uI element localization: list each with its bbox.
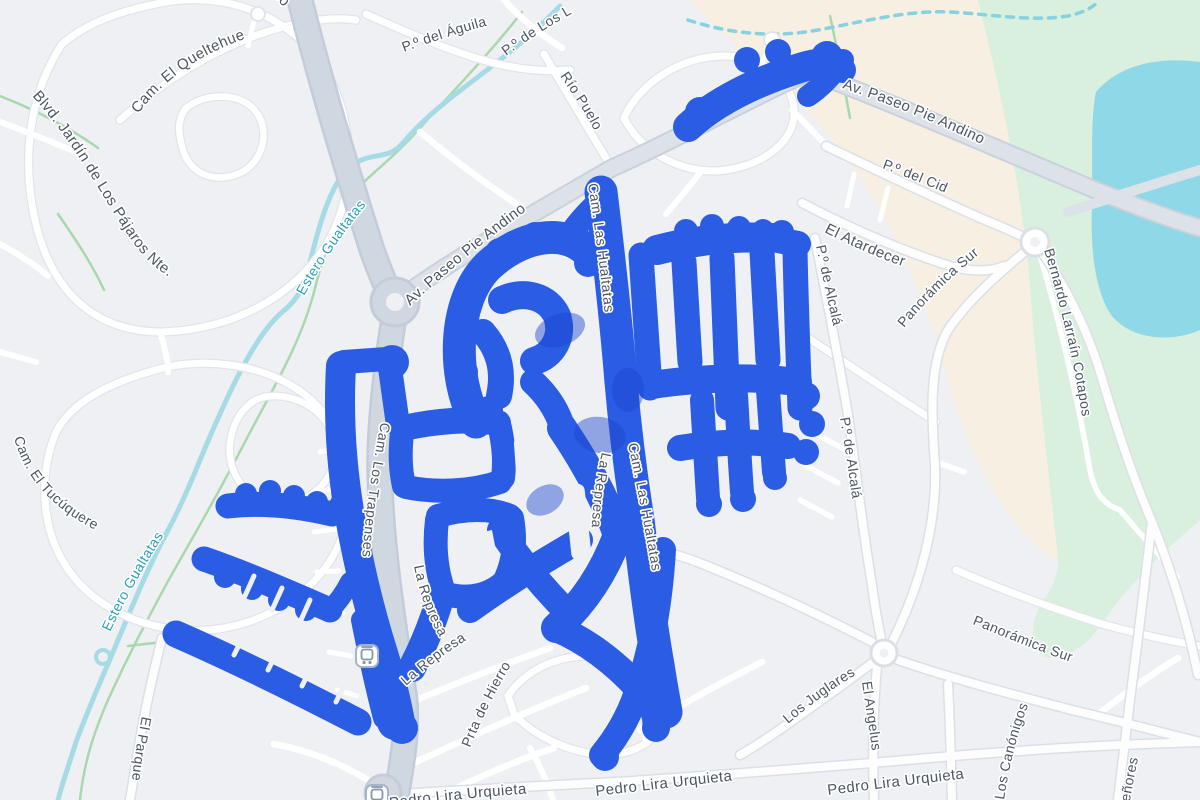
minor-road [314,529,336,532]
stream-node [96,650,110,664]
route-gap [417,451,480,471]
route-bump [700,214,724,238]
route-bump [643,715,669,741]
map-image: AndinoCam. El QueltehueBlvd. Jardín de L… [0,0,1200,800]
route-bump [793,439,819,465]
route-stroke [702,400,708,498]
route-stroke [684,262,690,362]
route-bump [521,222,549,250]
route-bump [734,47,760,73]
route-stroke [762,252,768,360]
map-canvas[interactable]: AndinoCam. El QueltehueBlvd. Jardín de L… [0,0,1200,800]
transit-station-icon[interactable] [356,645,378,667]
route-stroke [768,390,774,472]
route-bump [799,411,825,437]
route-bump [685,97,715,127]
route-bump [455,275,485,305]
cul-de-sac [251,7,265,21]
route-bump [770,220,794,244]
roundabout-cotapos-island [1030,237,1040,247]
route-bump [674,219,698,243]
roundabout-angelus-island [880,649,889,658]
route-bump [283,485,305,507]
route-bump [375,345,409,379]
minor-road [317,571,339,572]
route-bump [235,483,257,505]
roundabout-trapenses-island [386,293,404,311]
route-bump [450,358,478,386]
route-bump [448,318,476,346]
route-bump [696,491,722,517]
transit-station-icon[interactable] [366,785,388,800]
route-stroke [736,395,742,492]
route-bump [763,466,787,490]
route-bump [259,480,281,502]
route-overlap-patch [612,368,644,412]
route-bump [306,491,328,513]
route-bump [214,566,236,588]
route-bump [727,216,751,240]
route-bump [591,743,619,771]
route-bump [765,39,791,65]
route-bump [553,227,581,255]
route-bump [475,396,503,424]
route-bump [377,704,413,740]
route-stroke [406,482,500,491]
route-bump [730,486,756,512]
route-stroke [438,510,510,516]
route-bump [792,382,820,410]
